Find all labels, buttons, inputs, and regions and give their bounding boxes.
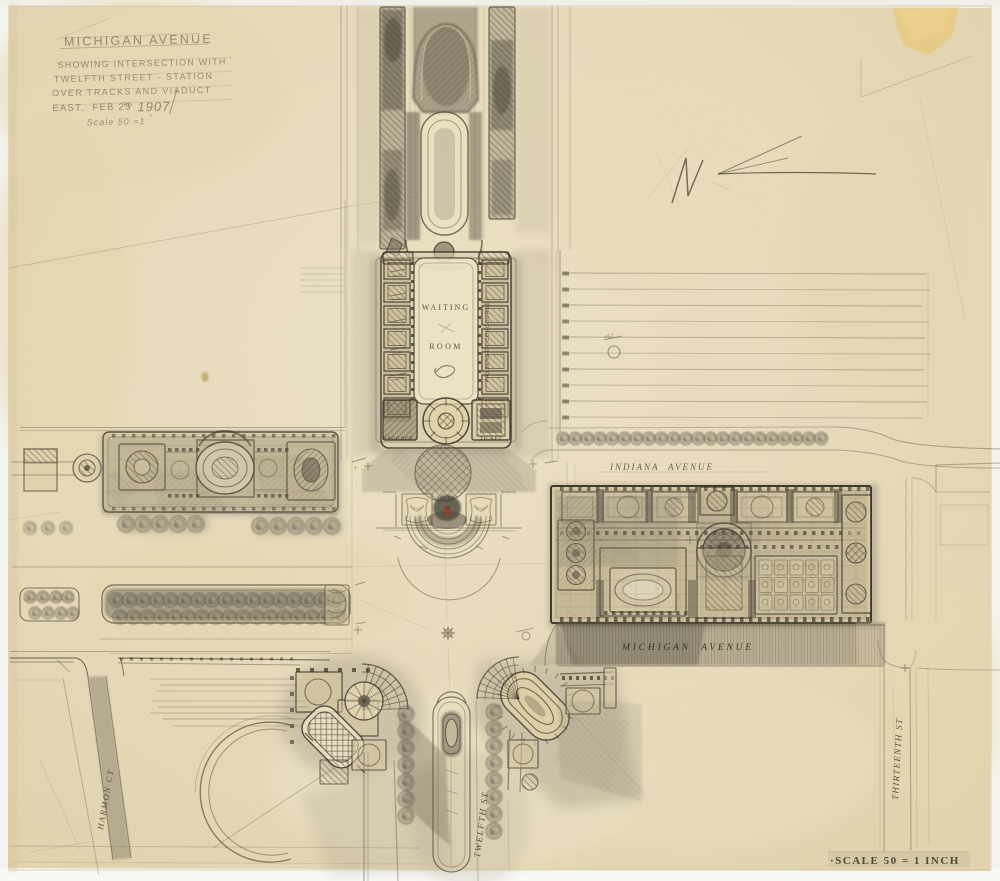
svg-text:INDIANA AVENUE: INDIANA AVENUE [609,462,714,472]
svg-text:1907: 1907 [137,99,170,115]
svg-text:ROOM: ROOM [429,342,463,351]
svg-text:+: + [354,466,358,472]
svg-text:EAST. FEB 23: EAST. FEB 23 [52,102,131,115]
svg-text:WAITING: WAITING [422,303,470,312]
svg-text:": " [150,113,153,122]
svg-text:Scale 50 =1: Scale 50 =1 [87,116,146,127]
svg-text:MICHIGAN AVENUE: MICHIGAN AVENUE [621,643,754,653]
svg-text:BAGGAGE: BAGGAGE [383,436,414,442]
svg-text:TICKET: TICKET [480,436,503,442]
svg-text:RD: RD [123,102,132,108]
svg-text:PASSENGER CONCOURSE: PASSENGER CONCOURSE [485,302,491,382]
